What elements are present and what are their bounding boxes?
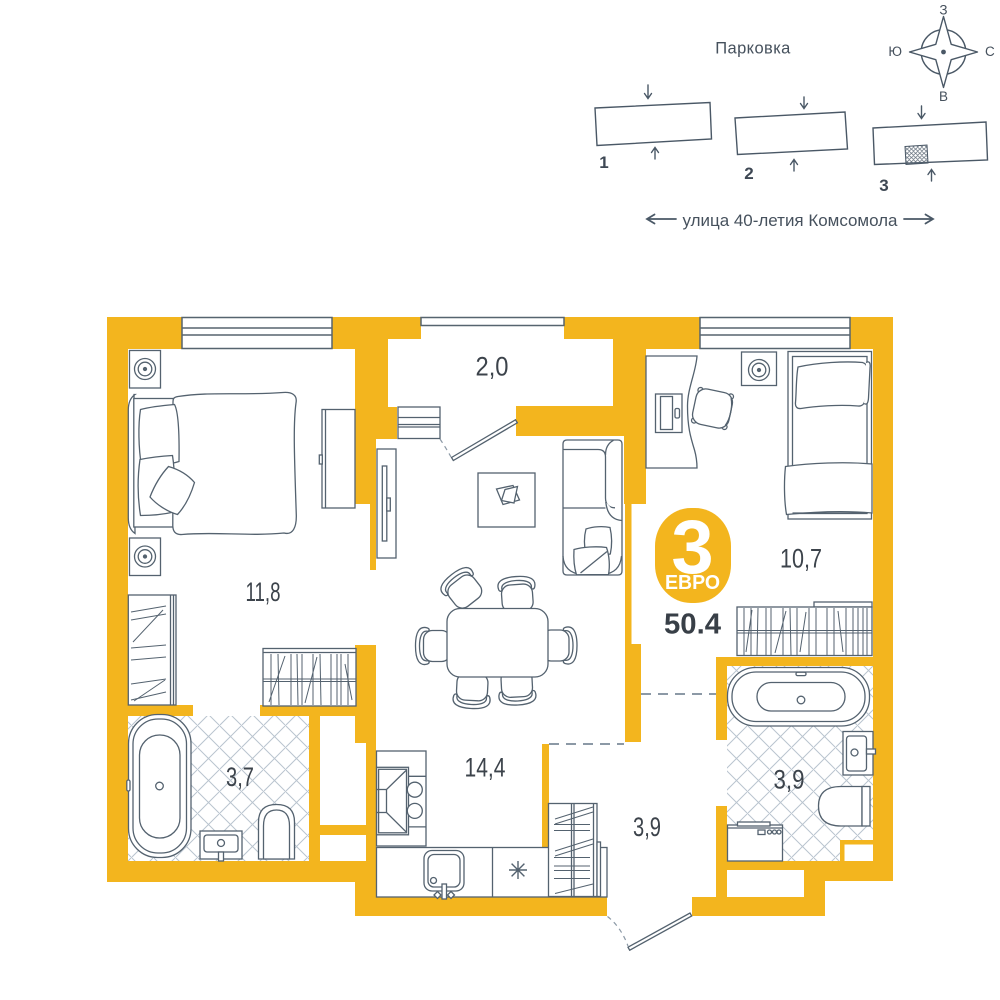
svg-text:2: 2 — [744, 164, 753, 183]
svg-text:3,9: 3,9 — [633, 812, 661, 842]
svg-text:Ю: Ю — [888, 44, 902, 59]
svg-text:улица 40-летия Комсомола: улица 40-летия Комсомола — [683, 212, 899, 230]
svg-text:Парковка: Парковка — [715, 40, 791, 58]
svg-text:3,7: 3,7 — [226, 762, 254, 792]
svg-text:11,8: 11,8 — [246, 577, 281, 607]
svg-text:С: С — [985, 44, 995, 59]
svg-text:10,7: 10,7 — [780, 544, 822, 574]
svg-text:2,0: 2,0 — [476, 352, 509, 382]
svg-text:14,4: 14,4 — [465, 753, 506, 783]
svg-text:3: 3 — [879, 176, 888, 195]
svg-text:50.4: 50.4 — [664, 609, 721, 641]
svg-text:З: З — [939, 3, 947, 18]
svg-text:3,9: 3,9 — [774, 765, 805, 795]
svg-text:ЕВРО: ЕВРО — [665, 572, 720, 594]
svg-text:1: 1 — [599, 153, 608, 172]
svg-text:В: В — [939, 89, 948, 104]
